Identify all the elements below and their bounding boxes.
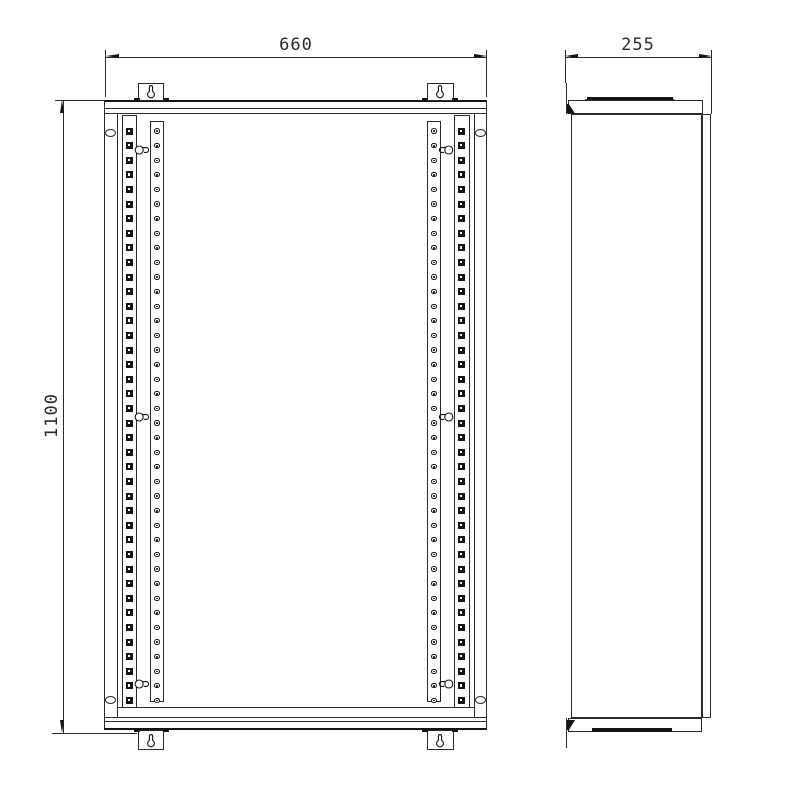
rack-square-hole xyxy=(458,420,465,427)
cage-nut-hole xyxy=(431,493,436,498)
front-bottom-band-line-1 xyxy=(105,717,486,718)
cage-nut-hole xyxy=(431,216,436,221)
rack-square-hole xyxy=(458,653,465,660)
rack-square-hole xyxy=(126,303,133,310)
cage-nut-hole xyxy=(154,143,159,148)
rack-square-hole xyxy=(126,566,133,573)
arrowhead-right-icon xyxy=(699,54,712,58)
front-top-band-line-2 xyxy=(105,113,486,114)
rack-square-hole xyxy=(458,697,465,704)
rack-square-hole xyxy=(458,274,465,281)
cage-nut-hole xyxy=(431,304,436,309)
rack-square-hole xyxy=(126,536,133,543)
rack-square-hole xyxy=(126,493,133,500)
rack-square-hole xyxy=(126,259,133,266)
cage-nut-hole xyxy=(431,566,436,571)
cage-nut-hole xyxy=(431,420,436,425)
rack-square-hole xyxy=(126,522,133,529)
side-bottom-lip xyxy=(592,728,672,731)
rack-square-hole xyxy=(126,624,133,631)
ext-line-255-right xyxy=(711,50,712,114)
rack-square-hole xyxy=(458,595,465,602)
dim-line-660 xyxy=(106,57,487,58)
rack-square-hole xyxy=(458,580,465,587)
rack-square-hole xyxy=(458,347,465,354)
rack-square-hole xyxy=(458,434,465,441)
rack-square-hole xyxy=(458,230,465,237)
rack-square-hole xyxy=(126,390,133,397)
rack-square-hole xyxy=(458,390,465,397)
arrowhead-down-icon xyxy=(60,720,64,733)
rack-square-hole xyxy=(458,682,465,689)
cage-nut-hole xyxy=(431,201,436,206)
rack-square-hole xyxy=(126,171,133,178)
rack-square-hole xyxy=(126,595,133,602)
dim-depth-label: 255 xyxy=(608,35,668,55)
rack-square-hole xyxy=(126,376,133,383)
cage-nut-hole xyxy=(154,128,159,133)
front-top-band-line-1 xyxy=(105,108,486,109)
rack-square-hole xyxy=(126,142,133,149)
rack-square-hole xyxy=(458,449,465,456)
bracket-foot xyxy=(134,98,140,100)
rack-square-hole xyxy=(126,361,133,368)
side-body xyxy=(571,114,702,719)
flange-oval-hole xyxy=(105,129,116,137)
cage-nut-hole xyxy=(154,654,159,659)
cage-nut-hole xyxy=(154,406,159,411)
cage-nut-hole xyxy=(154,552,159,557)
rail-keyhole-icon xyxy=(438,677,454,691)
rack-square-hole xyxy=(458,376,465,383)
rack-square-hole xyxy=(458,639,465,646)
cage-nut-hole xyxy=(431,639,436,644)
cage-nut-hole xyxy=(154,187,159,192)
dim-line-255 xyxy=(565,57,712,58)
rack-square-hole xyxy=(126,201,133,208)
cage-nut-hole xyxy=(154,435,159,440)
rack-square-hole xyxy=(126,405,133,412)
arrowhead-up-icon xyxy=(60,100,64,113)
cage-nut-hole xyxy=(154,362,159,367)
rack-square-hole xyxy=(126,420,133,427)
cage-nut-hole xyxy=(154,216,159,221)
rack-square-hole xyxy=(458,317,465,324)
cage-nut-hole xyxy=(154,523,159,528)
rack-square-hole xyxy=(126,463,133,470)
cage-nut-hole xyxy=(154,260,159,265)
keyhole-slot-icon xyxy=(144,733,158,748)
cage-nut-hole xyxy=(431,231,436,236)
front-bottom-band-line-2 xyxy=(105,721,486,722)
rack-square-hole xyxy=(458,405,465,412)
rack-square-hole xyxy=(126,551,133,558)
cage-nut-hole xyxy=(431,669,436,674)
cage-nut-hole xyxy=(431,581,436,586)
drawing-canvas: 660 255 1100 xyxy=(0,0,800,800)
cage-nut-hole xyxy=(154,347,159,352)
rack-square-hole xyxy=(126,230,133,237)
rack-square-hole xyxy=(458,507,465,514)
front-right-flange-line xyxy=(474,113,475,718)
rack-square-hole xyxy=(126,244,133,251)
cage-nut-hole xyxy=(431,289,436,294)
rack-square-hole xyxy=(458,566,465,573)
rack-square-hole xyxy=(458,551,465,558)
rack-square-hole xyxy=(126,507,133,514)
rack-square-hole xyxy=(126,332,133,339)
dim-width-label: 660 xyxy=(266,35,326,55)
cage-nut-hole xyxy=(154,581,159,586)
cage-nut-hole xyxy=(154,508,159,513)
bracket-foot xyxy=(163,98,169,100)
cage-nut-hole xyxy=(154,377,159,382)
cage-nut-hole xyxy=(154,274,159,279)
bracket-foot xyxy=(452,98,458,100)
cage-nut-hole xyxy=(431,523,436,528)
cage-nut-hole xyxy=(431,347,436,352)
flange-oval-hole xyxy=(475,129,486,137)
cage-nut-hole xyxy=(431,274,436,279)
cage-nut-hole xyxy=(431,654,436,659)
rack-square-hole xyxy=(458,522,465,529)
cage-nut-hole xyxy=(154,596,159,601)
cage-nut-hole xyxy=(154,479,159,484)
rack-square-hole xyxy=(458,157,465,164)
rack-square-hole xyxy=(126,317,133,324)
cage-nut-hole xyxy=(431,362,436,367)
cage-nut-hole xyxy=(154,493,159,498)
rack-square-hole xyxy=(458,493,465,500)
arrowhead-left-icon xyxy=(565,54,578,58)
rack-square-hole xyxy=(126,274,133,281)
rack-square-hole xyxy=(126,347,133,354)
cage-nut-hole xyxy=(431,479,436,484)
rack-square-hole xyxy=(458,244,465,251)
cage-nut-hole xyxy=(154,698,159,703)
cage-nut-hole xyxy=(154,304,159,309)
rack-square-hole xyxy=(126,215,133,222)
cage-nut-hole xyxy=(154,158,159,163)
cage-nut-hole xyxy=(431,187,436,192)
cage-nut-hole xyxy=(431,158,436,163)
rack-square-hole xyxy=(458,361,465,368)
cage-nut-hole xyxy=(431,128,436,133)
rack-square-hole xyxy=(126,580,133,587)
rack-square-hole xyxy=(458,171,465,178)
rack-square-hole xyxy=(126,609,133,616)
cage-nut-hole xyxy=(431,596,436,601)
cage-nut-hole xyxy=(431,260,436,265)
rack-square-hole xyxy=(126,682,133,689)
rail-keyhole-icon xyxy=(134,677,150,691)
cage-nut-hole xyxy=(154,669,159,674)
rack-square-hole xyxy=(126,478,133,485)
rack-square-hole xyxy=(126,449,133,456)
cage-nut-hole xyxy=(154,450,159,455)
cage-nut-hole xyxy=(154,625,159,630)
cage-nut-hole xyxy=(431,552,436,557)
rack-square-hole xyxy=(126,288,133,295)
rack-square-hole xyxy=(458,609,465,616)
front-left-flange-line xyxy=(117,113,118,718)
rack-square-hole xyxy=(458,288,465,295)
keyhole-slot-icon xyxy=(433,733,447,748)
rack-square-hole xyxy=(126,653,133,660)
rail-keyhole-icon xyxy=(134,410,150,424)
keyhole-slot-icon xyxy=(144,84,158,99)
keyhole-slot-icon xyxy=(433,84,447,99)
cage-nut-hole xyxy=(431,450,436,455)
rack-square-hole xyxy=(458,142,465,149)
flange-oval-hole xyxy=(475,696,486,704)
rack-square-hole xyxy=(458,332,465,339)
rack-square-hole xyxy=(458,201,465,208)
rack-square-hole xyxy=(458,186,465,193)
cage-nut-hole xyxy=(154,639,159,644)
front-bottom-inner-line xyxy=(117,707,474,708)
cage-nut-hole xyxy=(431,406,436,411)
cage-nut-hole xyxy=(154,289,159,294)
ext-line-1100-bottom xyxy=(52,733,137,734)
rack-square-hole xyxy=(458,463,465,470)
arrowhead-left-icon xyxy=(106,54,119,58)
rack-square-hole xyxy=(126,128,133,135)
cage-nut-hole xyxy=(431,333,436,338)
bracket-foot xyxy=(134,730,140,732)
side-rear-panel xyxy=(702,114,711,719)
rack-square-hole xyxy=(126,157,133,164)
cage-nut-hole xyxy=(154,333,159,338)
cage-nut-hole xyxy=(154,566,159,571)
cage-nut-hole xyxy=(431,625,436,630)
bracket-foot xyxy=(163,730,169,732)
rack-square-hole xyxy=(458,668,465,675)
arrowhead-right-icon xyxy=(474,54,487,58)
rack-square-hole xyxy=(458,624,465,631)
rack-square-hole xyxy=(126,434,133,441)
rail-keyhole-icon xyxy=(438,410,454,424)
bracket-foot xyxy=(422,730,428,732)
rack-square-hole xyxy=(458,128,465,135)
cage-nut-hole xyxy=(154,201,159,206)
cage-nut-hole xyxy=(154,231,159,236)
rack-square-hole xyxy=(458,259,465,266)
rail-keyhole-icon xyxy=(134,143,150,157)
cage-nut-hole xyxy=(431,377,436,382)
dim-line-1100 xyxy=(63,100,64,733)
cage-nut-hole xyxy=(431,508,436,513)
rail-keyhole-icon xyxy=(438,143,454,157)
bracket-foot xyxy=(452,730,458,732)
dim-height-label: 1100 xyxy=(42,394,62,438)
rack-square-hole xyxy=(458,303,465,310)
rack-square-hole xyxy=(126,639,133,646)
rack-square-hole xyxy=(458,536,465,543)
rack-square-hole xyxy=(458,478,465,485)
flange-oval-hole xyxy=(105,696,116,704)
cage-nut-hole xyxy=(431,435,436,440)
bracket-foot xyxy=(422,98,428,100)
cage-nut-hole xyxy=(431,143,436,148)
rack-square-hole xyxy=(126,697,133,704)
cage-nut-hole xyxy=(154,420,159,425)
rack-square-hole xyxy=(126,186,133,193)
rack-square-hole xyxy=(458,215,465,222)
cage-nut-hole xyxy=(431,698,436,703)
rack-square-hole xyxy=(126,668,133,675)
side-top-cap xyxy=(568,100,703,114)
side-top-lip xyxy=(587,97,673,100)
